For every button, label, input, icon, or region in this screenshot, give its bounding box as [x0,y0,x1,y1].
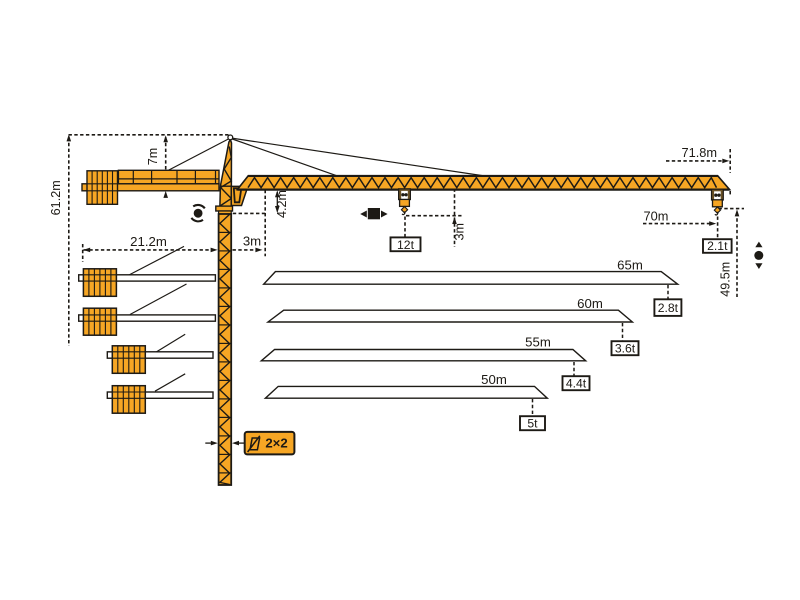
svg-text:61.2m: 61.2m [49,180,63,215]
svg-text:7m: 7m [146,148,160,166]
svg-text:3m: 3m [243,234,261,249]
svg-text:5t: 5t [527,417,538,431]
svg-text:49.5m: 49.5m [719,262,733,297]
svg-text:4.4t: 4.4t [566,377,587,391]
svg-text:3.6t: 3.6t [615,342,636,356]
svg-text:55m: 55m [525,335,551,350]
svg-text:12t: 12t [397,238,415,252]
svg-text:21.2m: 21.2m [130,234,167,249]
svg-text:71.8m: 71.8m [682,145,718,160]
svg-text:50m: 50m [481,372,507,387]
svg-text:70m: 70m [644,208,669,223]
svg-text:60m: 60m [577,296,603,311]
svg-text:65m: 65m [617,257,643,272]
svg-text:3m: 3m [453,223,467,241]
svg-text:2.1t: 2.1t [707,239,728,253]
svg-text:2.8t: 2.8t [658,301,679,315]
svg-text:4.2m: 4.2m [275,190,289,218]
svg-text:2×2: 2×2 [265,436,287,451]
